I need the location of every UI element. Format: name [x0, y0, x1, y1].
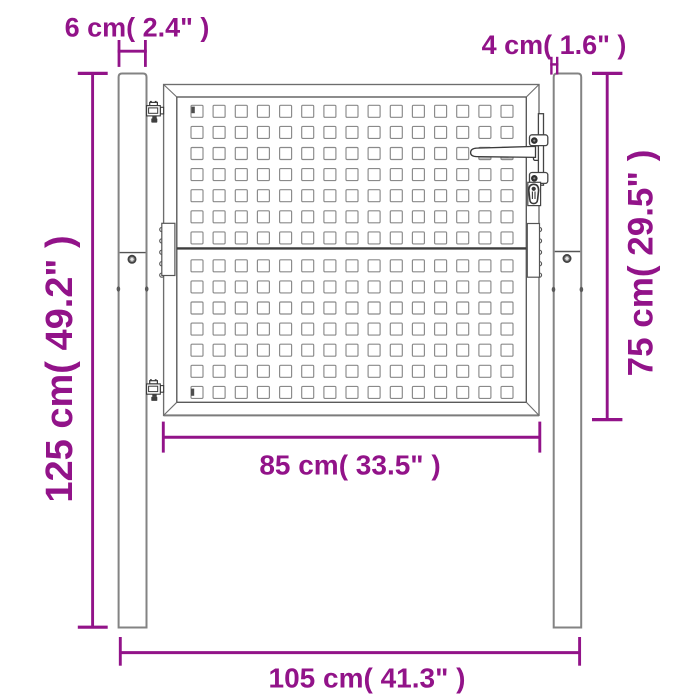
svg-text:105 cm( 41.3" ): 105 cm( 41.3" )	[269, 663, 466, 694]
svg-text:4 cm( 1.6" ): 4 cm( 1.6" )	[482, 30, 627, 60]
svg-text:75 cm( 29.5" ): 75 cm( 29.5" )	[622, 150, 661, 377]
svg-text:125 cm( 49.2" ): 125 cm( 49.2" )	[39, 235, 81, 502]
svg-text:85 cm( 33.5" ): 85 cm( 33.5" )	[259, 449, 440, 480]
svg-text:6 cm( 2.4" ): 6 cm( 2.4" )	[65, 13, 210, 43]
